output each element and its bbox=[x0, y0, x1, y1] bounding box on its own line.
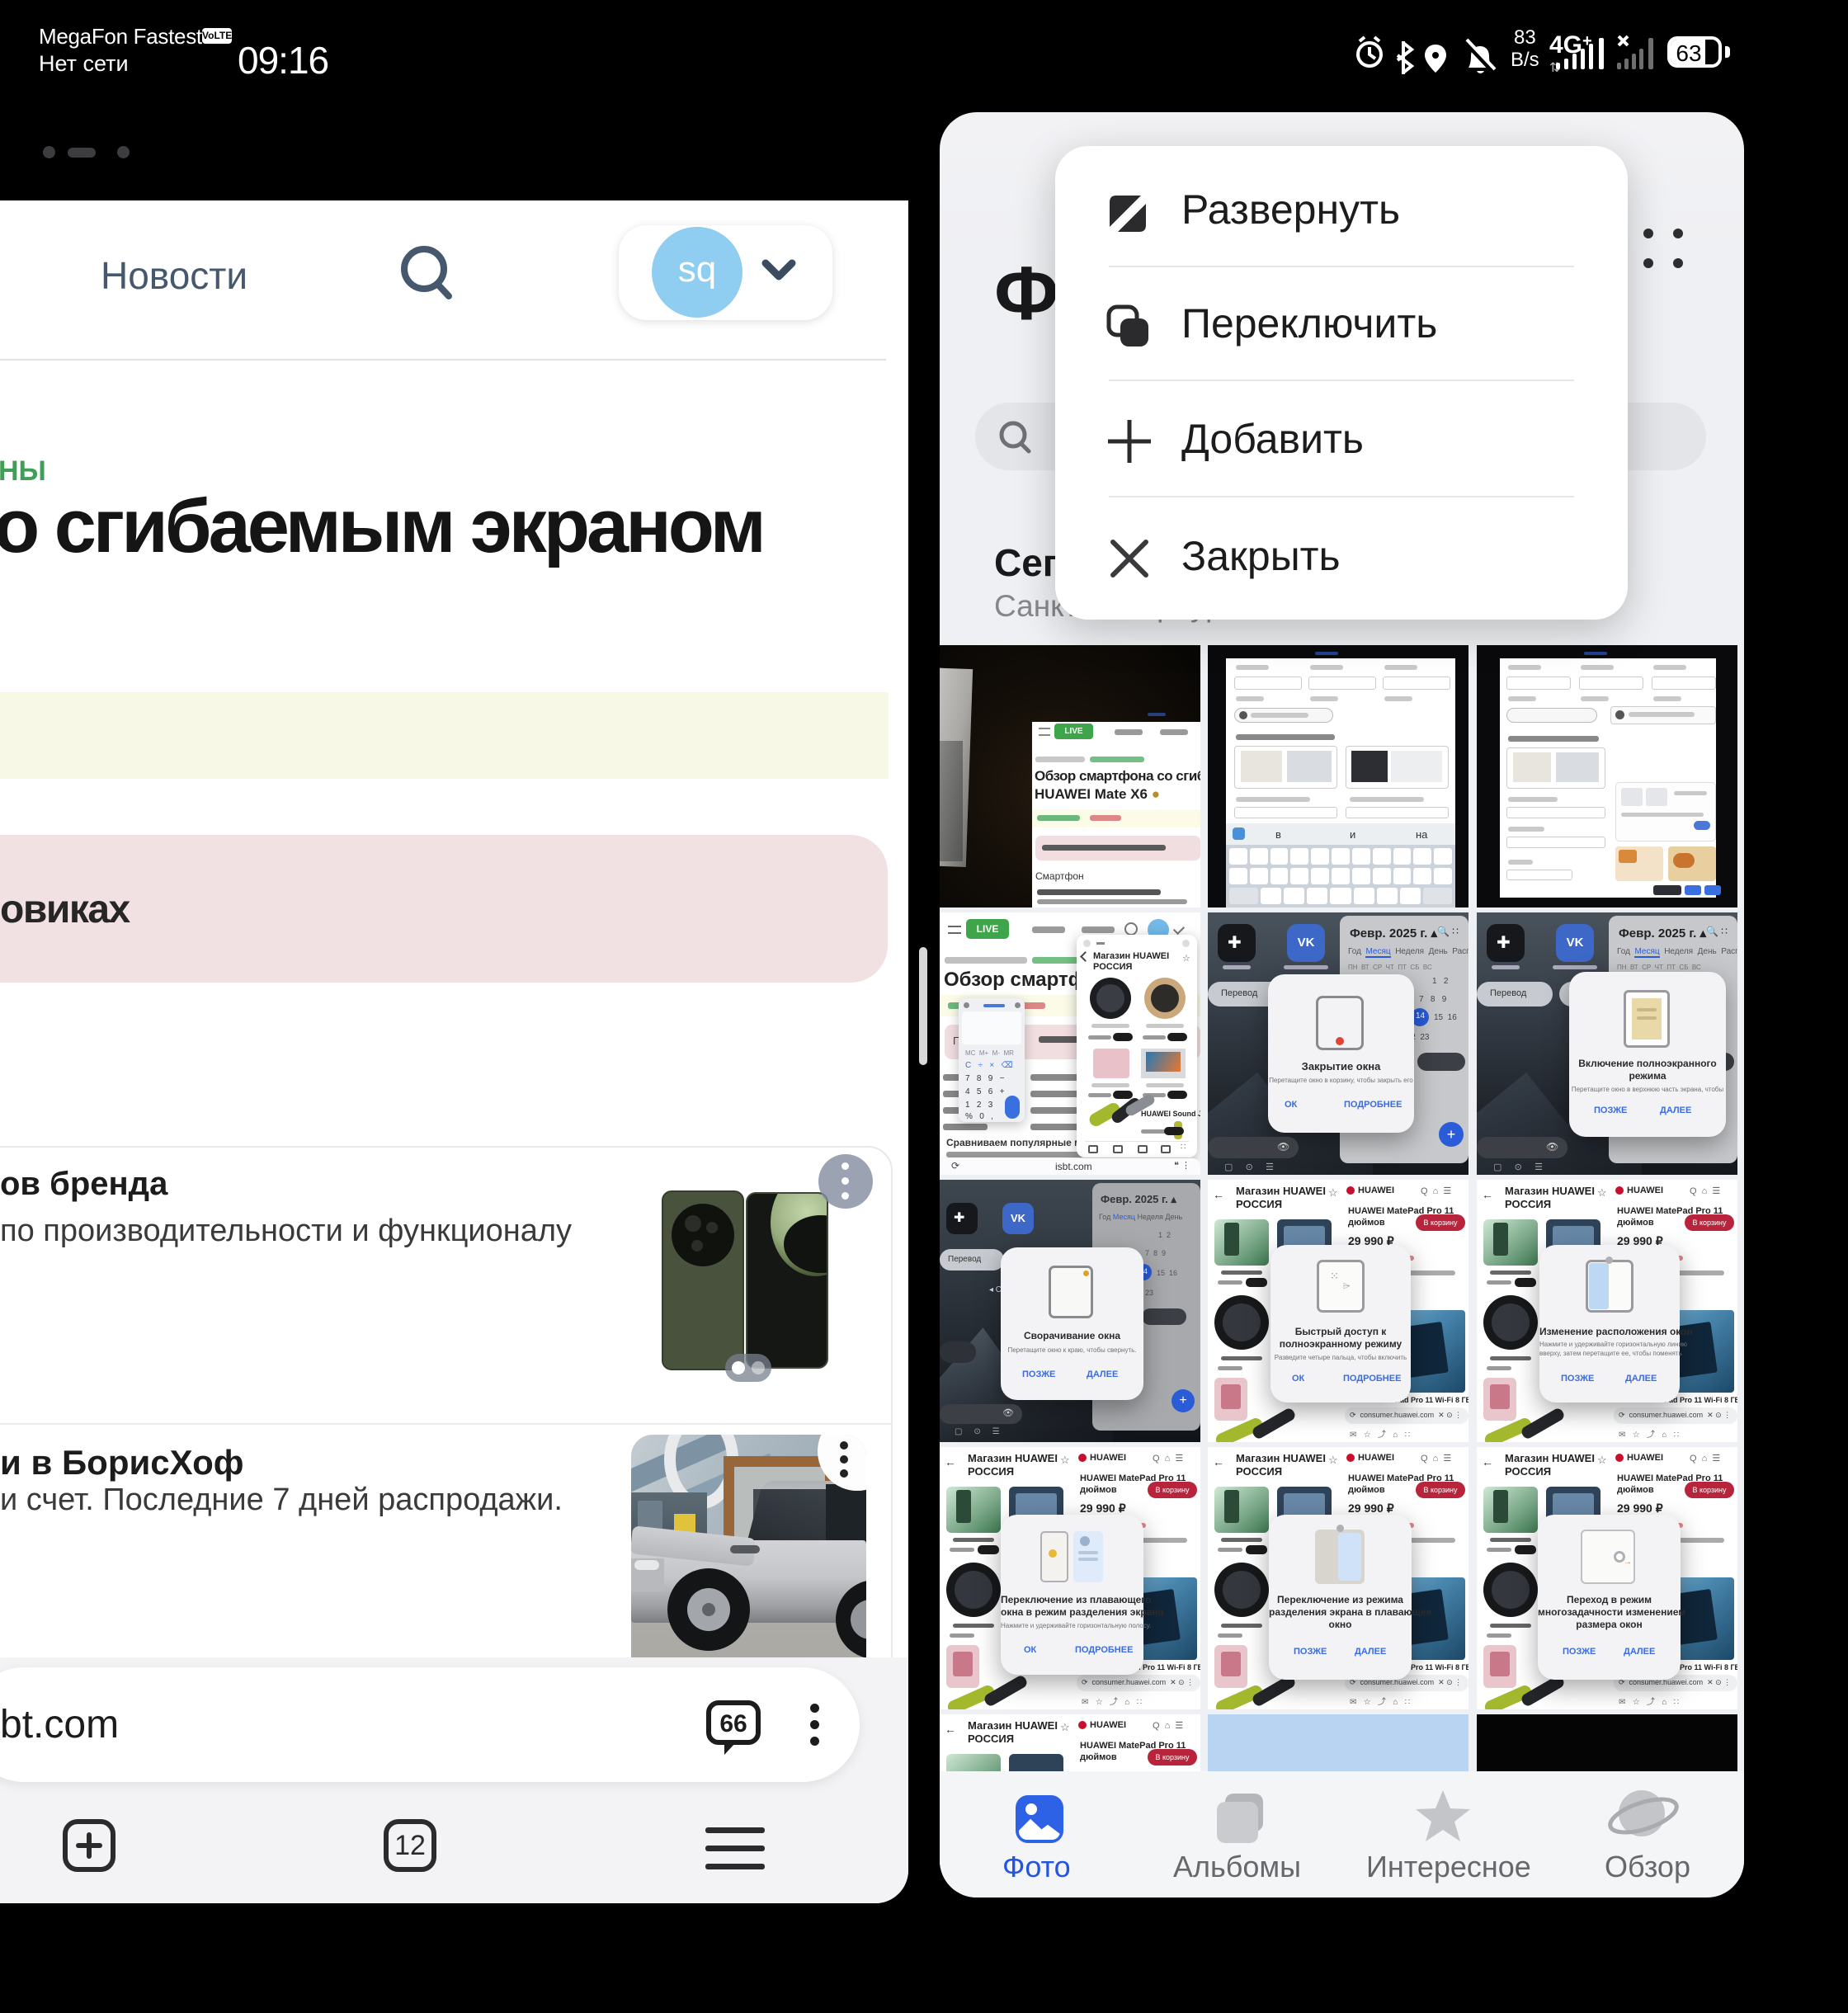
svg-text:66: 66 bbox=[719, 1710, 747, 1737]
